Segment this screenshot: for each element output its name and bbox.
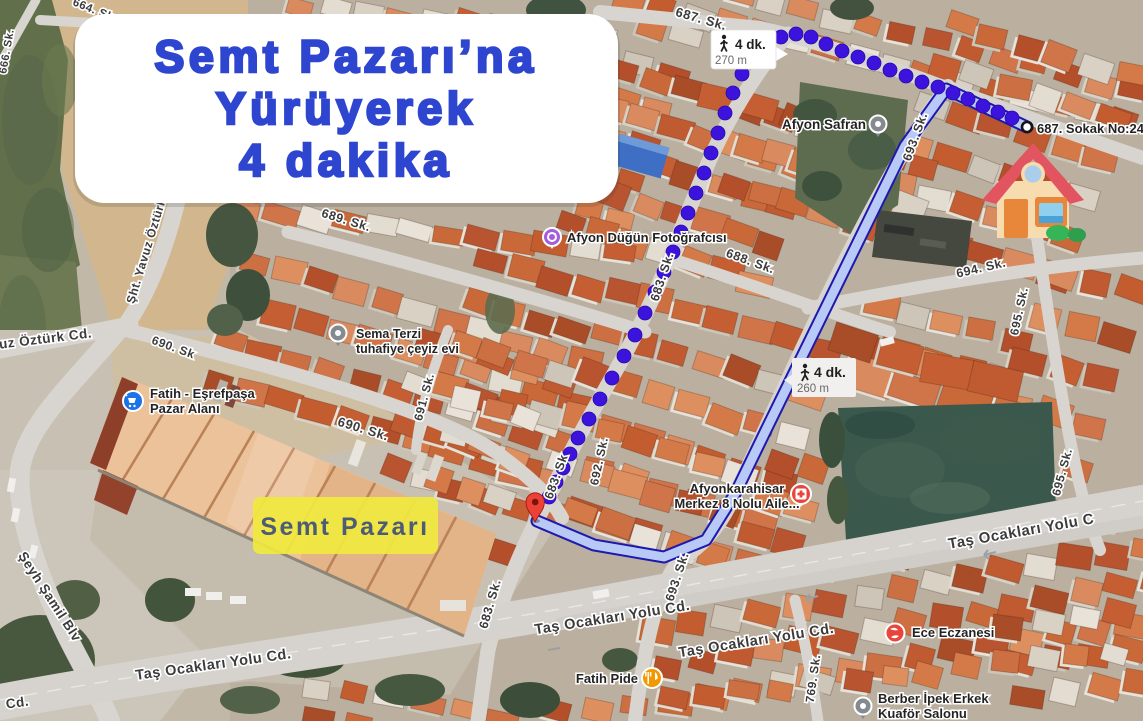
svg-text:Cd.: Cd. xyxy=(5,693,30,711)
svg-text:Afyon Safran: Afyon Safran xyxy=(782,117,866,132)
svg-text:4 dakika: 4 dakika xyxy=(239,135,453,186)
svg-text:260 m: 260 m xyxy=(797,383,829,395)
svg-text:687. Sokak No:24: 687. Sokak No:24 xyxy=(1037,121,1143,136)
svg-text:270 m: 270 m xyxy=(715,55,747,67)
svg-text:AfyonkarahisarMerkez 8 Nolu Ai: AfyonkarahisarMerkez 8 Nolu Aile... xyxy=(674,481,799,511)
svg-text:Yürüyerek: Yürüyerek xyxy=(216,83,477,134)
svg-text:Semt Pazarı: Semt Pazarı xyxy=(260,513,429,541)
svg-text:4 dk.: 4 dk. xyxy=(814,364,846,380)
svg-text:Semt Pazarı’na: Semt Pazarı’na xyxy=(154,31,537,82)
svg-text:Fatih Pide: Fatih Pide xyxy=(576,671,638,686)
svg-text:4 dk.: 4 dk. xyxy=(735,37,766,52)
svg-text:Ece Eczanesi: Ece Eczanesi xyxy=(912,625,994,640)
svg-text:Afyon Düğün Fotoğrafcısı: Afyon Düğün Fotoğrafcısı xyxy=(567,230,727,245)
